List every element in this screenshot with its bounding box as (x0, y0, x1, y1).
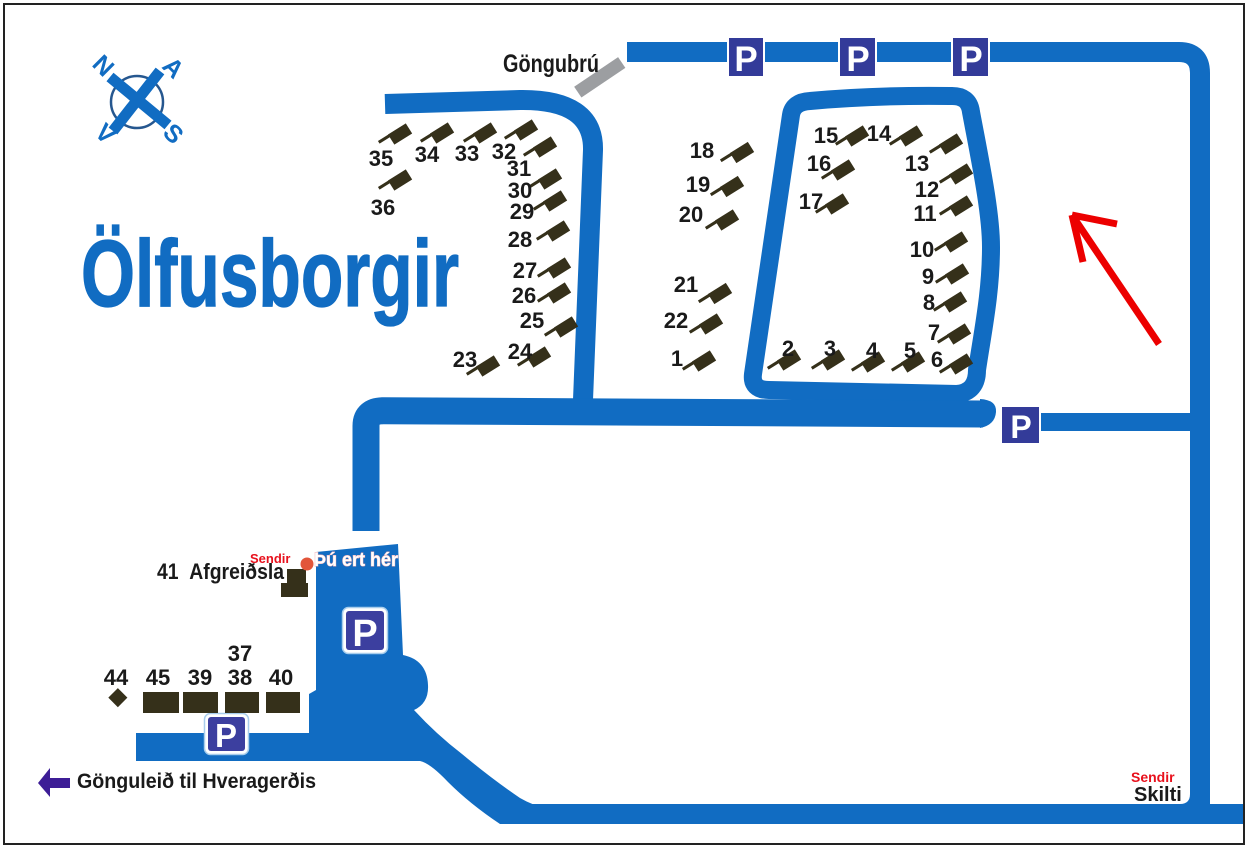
svg-text:25: 25 (520, 308, 544, 333)
svg-text:2: 2 (782, 336, 794, 361)
svg-text:38: 38 (228, 665, 252, 690)
svg-text:14: 14 (867, 121, 892, 146)
svg-text:16: 16 (807, 151, 831, 176)
svg-text:Sendir: Sendir (1131, 769, 1175, 785)
svg-text:28: 28 (508, 227, 532, 252)
svg-text:P: P (1010, 409, 1031, 445)
svg-text:22: 22 (664, 308, 688, 333)
svg-text:Gönguleið til Hveragerðis: Gönguleið til Hveragerðis (77, 770, 316, 793)
svg-text:19: 19 (686, 172, 710, 197)
svg-text:P: P (959, 40, 982, 79)
svg-text:34: 34 (415, 142, 440, 167)
svg-text:20: 20 (679, 202, 703, 227)
svg-text:Skilti: Skilti (1134, 784, 1182, 806)
svg-text:6: 6 (931, 347, 943, 372)
svg-text:26: 26 (512, 283, 536, 308)
svg-text:10: 10 (910, 237, 934, 262)
svg-text:29: 29 (510, 199, 534, 224)
svg-text:4: 4 (866, 338, 879, 363)
svg-text:39: 39 (188, 665, 212, 690)
svg-text:3: 3 (824, 336, 836, 361)
svg-text:33: 33 (455, 141, 479, 166)
svg-text:35: 35 (369, 146, 393, 171)
svg-text:P: P (215, 717, 237, 754)
svg-text:11: 11 (913, 201, 936, 226)
svg-text:13: 13 (905, 151, 929, 176)
svg-text:Göngubrú: Göngubrú (503, 50, 599, 78)
svg-text:18: 18 (690, 138, 714, 163)
svg-text:17: 17 (799, 189, 823, 214)
svg-text:40: 40 (269, 665, 293, 690)
svg-text:44: 44 (104, 665, 129, 690)
svg-text:7: 7 (928, 320, 940, 345)
svg-text:P: P (734, 40, 757, 79)
svg-text:27: 27 (513, 258, 537, 283)
svg-text:15: 15 (814, 123, 838, 148)
svg-text:21: 21 (674, 272, 698, 297)
svg-text:36: 36 (371, 195, 395, 220)
svg-text:Þú ert hér: Þú ert hér (314, 550, 399, 571)
svg-text:1: 1 (671, 346, 683, 371)
svg-text:37: 37 (228, 641, 252, 666)
svg-text:5: 5 (904, 338, 916, 363)
svg-text:9: 9 (922, 264, 934, 289)
svg-text:24: 24 (508, 339, 533, 364)
svg-text:P: P (846, 40, 869, 79)
svg-text:8: 8 (923, 290, 935, 315)
svg-text:Ölfusborgir: Ölfusborgir (81, 221, 459, 327)
svg-text:23: 23 (453, 347, 477, 372)
svg-text:45: 45 (146, 665, 170, 690)
svg-text:Sendir: Sendir (250, 551, 290, 566)
svg-text:P: P (352, 613, 377, 655)
svg-text:12: 12 (915, 177, 939, 202)
